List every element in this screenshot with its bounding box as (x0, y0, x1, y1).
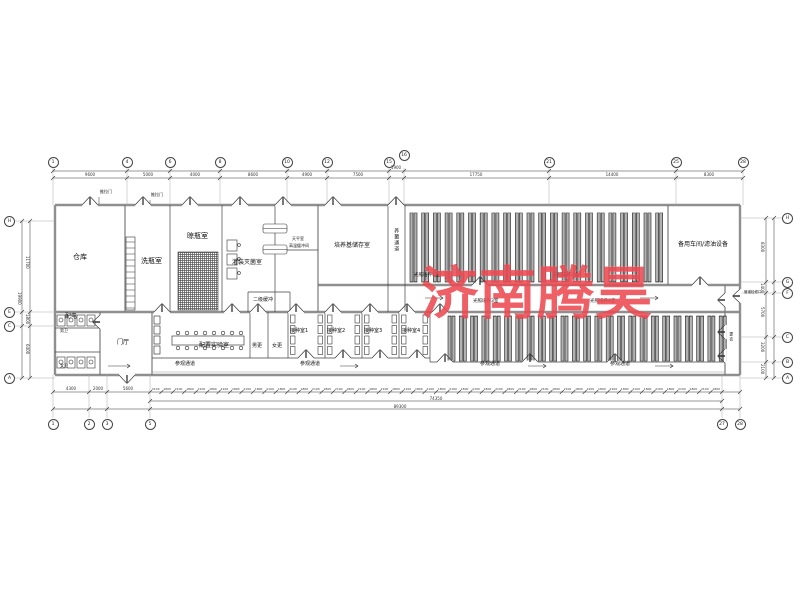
flow-arrow (655, 364, 673, 368)
grid-bubble-right-6: A (782, 373, 793, 384)
lab-equipment (154, 346, 160, 354)
clean-bench (392, 326, 397, 334)
dim-bottom-segment: 2100 (221, 387, 229, 391)
dim-left-1: 11700 (25, 256, 30, 269)
dim-bottom-segment: 2100 (655, 387, 663, 391)
corridor-label-3: 参观通道 (480, 362, 500, 367)
floor-plan-canvas: 仓库 洗瓶室 晾瓶室 灌装灭菌室 天平室 高温缓冲间 培养基储存室 养菌通道 光… (0, 0, 800, 600)
toilet-fixtures (57, 315, 95, 368)
corridor-label-4: 参观通道 (610, 362, 630, 367)
dim-bottom-segment: 1800 (232, 387, 240, 391)
door-opening (522, 361, 538, 364)
dim-top-7: 1900 (391, 165, 401, 170)
dim-bottom-3: 5600 (123, 386, 133, 391)
clean-bench (365, 315, 370, 323)
room-label-spare-workshop: 备用车间/滤油设备 (678, 242, 728, 248)
dim-bottom-segment: 1800 (301, 387, 309, 391)
grid-bubble-bottom-6: 28 (735, 419, 746, 430)
grid-bubble-right-4: C (782, 332, 793, 343)
flow-arrow (528, 364, 546, 368)
room-label-balance: 天平室 (292, 237, 304, 241)
dim-top-3: 4000 (190, 172, 200, 177)
grid-bubble-top-4: 8 (215, 157, 226, 168)
door-opening (325, 204, 341, 207)
dim-bottom-segment: 1800 (369, 387, 377, 391)
stool (239, 346, 243, 350)
dim-top-4: 8600 (248, 172, 258, 177)
clean-bench (355, 336, 360, 344)
dim-bottom-segment: 2100 (609, 387, 617, 391)
dim-bottom-segment: 2100 (701, 387, 709, 391)
dim-top-5: 4900 (302, 172, 312, 177)
room-label-change: 更衣 (729, 332, 733, 342)
grid-bubble-top-9: 21 (544, 157, 555, 168)
dim-bottom-segment: 2100 (472, 387, 480, 391)
drying-rack-hatch (178, 252, 218, 310)
sterilizer-equipment (227, 224, 287, 279)
dim-bottom-segment: 1800 (209, 387, 217, 391)
clean-bench (392, 347, 397, 355)
room-label-inoculation-2: 接种室2 (327, 329, 345, 334)
dim-bottom-segment: 1800 (507, 387, 515, 391)
dim-bottom-segment: 1800 (712, 387, 720, 391)
grid-bubble-bottom-4: 5 (145, 419, 156, 430)
door-opening (437, 361, 453, 364)
stool (221, 331, 225, 335)
stool (212, 331, 216, 335)
dim-bottom-segment: 1800 (438, 387, 446, 391)
clean-bench (392, 336, 397, 344)
grid-bubble-top-3: 6 (165, 157, 176, 168)
clean-bench (328, 347, 333, 355)
dim-bottom-segment: 2100 (426, 387, 434, 391)
dim-bottom-segment: 1800 (575, 387, 583, 391)
door-opening (275, 204, 291, 207)
lab-equipment (154, 316, 160, 324)
dim-left-total: 19900 (17, 292, 22, 305)
culture-rack (674, 316, 677, 361)
dim-bottom-segment: 1800 (255, 387, 263, 391)
stool (185, 346, 189, 350)
grid-bubble-top-6: 12 (322, 157, 333, 168)
dim-bottom-segment: 1800 (552, 387, 560, 391)
dim-top-9: 14400 (606, 172, 619, 177)
room-label-fungus-corridor: 养菌通道 (393, 228, 398, 252)
culture-rack (667, 316, 670, 361)
bottle-conveyor (126, 237, 135, 310)
room-label-bottle-wash: 洗瓶室 (141, 258, 162, 265)
grid-bubble-left-1: H (4, 216, 15, 227)
clean-bench (291, 315, 296, 323)
room-label-hot-buffer: 高温缓冲间 (289, 244, 309, 248)
door-opening (119, 374, 135, 377)
toilet (89, 318, 93, 322)
stool (185, 331, 189, 335)
door-opening (724, 349, 727, 363)
clean-bench (402, 347, 407, 355)
room-label-secondary-buffer: 二级缓冲 (253, 298, 273, 303)
grid-bubble-top-10: 25 (671, 157, 682, 168)
room-label-medium-storage: 培养基储存室 (334, 243, 370, 249)
stool (230, 346, 234, 350)
dim-bottom-segment: 2100 (678, 387, 686, 391)
grid-bubble-top-11: 28 (738, 157, 749, 168)
dim-bottom-segment: 1800 (346, 387, 354, 391)
dim-bottom-segment: 2100 (289, 387, 297, 391)
dim-right-4: 3200 (760, 342, 765, 352)
room-label-inoculation-4: 接种室4 (402, 329, 420, 334)
lab-equipment (154, 336, 160, 344)
dim-bottom-segment: 2100 (243, 387, 251, 391)
door-opening (724, 293, 727, 307)
dim-bottom-segment: 2100 (632, 387, 640, 391)
dim-bottom-segment: 1800 (529, 387, 537, 391)
lab-equipment (154, 326, 160, 334)
clean-bench (291, 347, 296, 355)
stool (194, 331, 198, 335)
dim-bottom-2: 2000 (93, 386, 103, 391)
dim-bottom-segment: 2100 (312, 387, 320, 391)
door-opening (154, 311, 170, 314)
door-opening (135, 204, 151, 207)
toilet (69, 360, 73, 364)
dim-right-1: 8300 (760, 242, 765, 252)
clean-bench (365, 336, 370, 344)
room-label-women-change: 女更 (272, 344, 282, 349)
grid-bubble-top-8: 16 (399, 150, 410, 161)
corridor-label-1: 参观通道 (175, 362, 195, 367)
dim-bottom-segment: 2100 (449, 387, 457, 391)
clean-bench (355, 326, 360, 334)
dim-bottom-segment: 1800 (461, 387, 469, 391)
door-opening (724, 325, 727, 339)
culture-rack (689, 316, 692, 361)
dim-right-3: 5700 (760, 307, 765, 317)
dim-top-10: 8300 (704, 172, 714, 177)
dim-bottom-segment: 2100 (564, 387, 572, 391)
grid-bubble-bottom-5: 27 (717, 419, 728, 430)
grid-bubble-right-1: H (782, 213, 793, 224)
door-opening (739, 289, 742, 303)
clean-bench (318, 326, 323, 334)
dim-bottom-segment: 1800 (484, 387, 492, 391)
corridor-label-2: 参观通道 (300, 362, 320, 367)
grid-bubble-bottom-3: 3 (102, 419, 113, 430)
clean-bench (328, 336, 333, 344)
dim-bottom-segment: 1800 (667, 387, 675, 391)
dim-left-3: 6400 (25, 344, 30, 354)
door-opening (82, 204, 98, 207)
clean-bench (328, 315, 333, 323)
flow-arrow (108, 364, 130, 368)
door-opening (372, 357, 388, 360)
door-opening (692, 284, 708, 287)
dim-bottom-segment: 1800 (278, 387, 286, 391)
dim-bottom-segment: 1800 (621, 387, 629, 391)
door-opening (288, 311, 304, 314)
stool (176, 346, 180, 350)
dim-left-2: 1800 (25, 314, 30, 324)
dim-top-2: 5000 (143, 172, 153, 177)
culture-rack (697, 316, 700, 361)
grid-bubble-right-2: G (782, 277, 793, 288)
door-note-sliding-1: 推拉门 (100, 190, 112, 194)
dim-top-8: 17750 (470, 172, 483, 177)
culture-rack (685, 316, 688, 361)
door-opening (362, 311, 378, 314)
grid-bubble-bottom-2: 2 (84, 419, 95, 430)
dim-bottom-segment: 2100 (335, 387, 343, 391)
culture-rack (660, 213, 663, 282)
door-opening (232, 204, 248, 207)
grid-bubble-top-1: 1 (48, 157, 59, 168)
dim-bottom-mid-total: 74350 (430, 396, 443, 401)
dim-bottom-segment: 2100 (518, 387, 526, 391)
culture-rack (712, 316, 715, 361)
room-label-power: 配电 (65, 314, 77, 320)
culture-rack (708, 316, 711, 361)
dim-bottom-segment: 2100 (381, 387, 389, 391)
culture-rack (410, 213, 413, 282)
toilet (79, 318, 83, 322)
clean-bench (423, 347, 428, 355)
room-label-filling-steril: 灌装灭菌室 (232, 260, 262, 266)
toilet (79, 360, 83, 364)
stool (230, 331, 234, 335)
dim-right-2: 1400 (760, 283, 765, 293)
room-label-prep-lab: 配置实验室 (199, 343, 229, 349)
culture-rack (414, 213, 417, 282)
clean-bench (355, 347, 360, 355)
watermark-text: 济南腾昊 (421, 248, 653, 330)
door-note-sliding-2: 推拉门 (151, 193, 163, 197)
clean-bench (318, 336, 323, 344)
grid-bubble-top-2: 4 (122, 157, 133, 168)
grid-bubble-bottom-1: 1 (48, 419, 59, 430)
toilet (59, 318, 63, 322)
culture-rack (656, 213, 659, 282)
dim-bottom-segment: 2100 (266, 387, 274, 391)
culture-rack (663, 316, 666, 361)
door-opening (250, 311, 266, 314)
clean-bench (318, 315, 323, 323)
dim-bottom-total: 89300 (394, 404, 407, 409)
dim-bottom-segment: 2100 (404, 387, 412, 391)
note-pipe-access: 管道检修口 (744, 291, 762, 295)
grid-bubble-left-2: E (4, 307, 15, 318)
room-label-men-change: 男更 (252, 344, 262, 349)
clean-benches (291, 315, 428, 355)
dim-bottom-segment: 1800 (163, 387, 171, 391)
dim-bottom-segment: 1800 (392, 387, 400, 391)
dim-bottom-segment: 2100 (495, 387, 503, 391)
flow-arrow (340, 364, 358, 368)
clean-bench (423, 336, 428, 344)
dim-bottom-segment: 2100 (175, 387, 183, 391)
room-label-inoculation-1: 接种室1 (290, 329, 308, 334)
dim-bottom-segment: 2100 (587, 387, 595, 391)
culture-rack (655, 316, 658, 361)
room-label-foyer: 门厅 (117, 340, 129, 346)
door-opening (399, 311, 415, 314)
dim-bottom-segment: 1800 (644, 387, 652, 391)
door-opening (409, 357, 425, 360)
grid-bubble-right-5: B (782, 357, 793, 368)
dim-bottom-segment: 2100 (198, 387, 206, 391)
door-opening (388, 204, 404, 207)
stool (203, 331, 207, 335)
dim-right-5: 2100 (760, 364, 765, 374)
toilet (89, 360, 93, 364)
stool (176, 331, 180, 335)
door-opening (99, 315, 102, 329)
stool (194, 346, 198, 350)
culture-rack (701, 316, 704, 361)
dim-bottom-1: 4300 (66, 386, 76, 391)
grid-bubble-left-3: C (4, 321, 15, 332)
door-opening (224, 311, 240, 314)
culture-rack (678, 316, 681, 361)
door-opening (335, 357, 351, 360)
door-opening (298, 357, 314, 360)
dim-top-6: 7500 (353, 172, 363, 177)
room-label-men-wc: 男卫 (60, 329, 68, 333)
clean-bench (318, 347, 323, 355)
room-label-women-wc: 女卫 (60, 364, 68, 368)
dim-bottom-segment: 1800 (690, 387, 698, 391)
dim-bottom-segment: 2100 (358, 387, 366, 391)
dim-bottom-segment: 1800 (598, 387, 606, 391)
floor-plan-drawing (0, 0, 800, 600)
dim-bottom-segment: 1800 (323, 387, 331, 391)
room-label-inoculation-3: 接种室3 (364, 329, 382, 334)
grid-bubble-left-4: A (4, 373, 15, 384)
dim-bottom-segment: 2100 (541, 387, 549, 391)
stool (239, 331, 243, 335)
grid-bubble-top-5: 10 (282, 157, 293, 168)
clean-bench (402, 336, 407, 344)
clean-bench (392, 315, 397, 323)
dim-bottom-segment: 2100 (152, 387, 160, 391)
dim-top-1: 9600 (85, 172, 95, 177)
room-label-warehouse: 仓库 (73, 254, 87, 261)
grid-bubble-right-3: F (782, 288, 793, 299)
clean-bench (402, 315, 407, 323)
clean-bench (365, 347, 370, 355)
clean-bench (355, 315, 360, 323)
door-opening (325, 311, 341, 314)
dim-bottom-segment: 1800 (186, 387, 194, 391)
room-label-bottle-dry: 晾瓶室 (187, 233, 208, 240)
clean-bench (291, 336, 296, 344)
dim-bottom-segment: 1800 (415, 387, 423, 391)
door-opening (182, 204, 198, 207)
